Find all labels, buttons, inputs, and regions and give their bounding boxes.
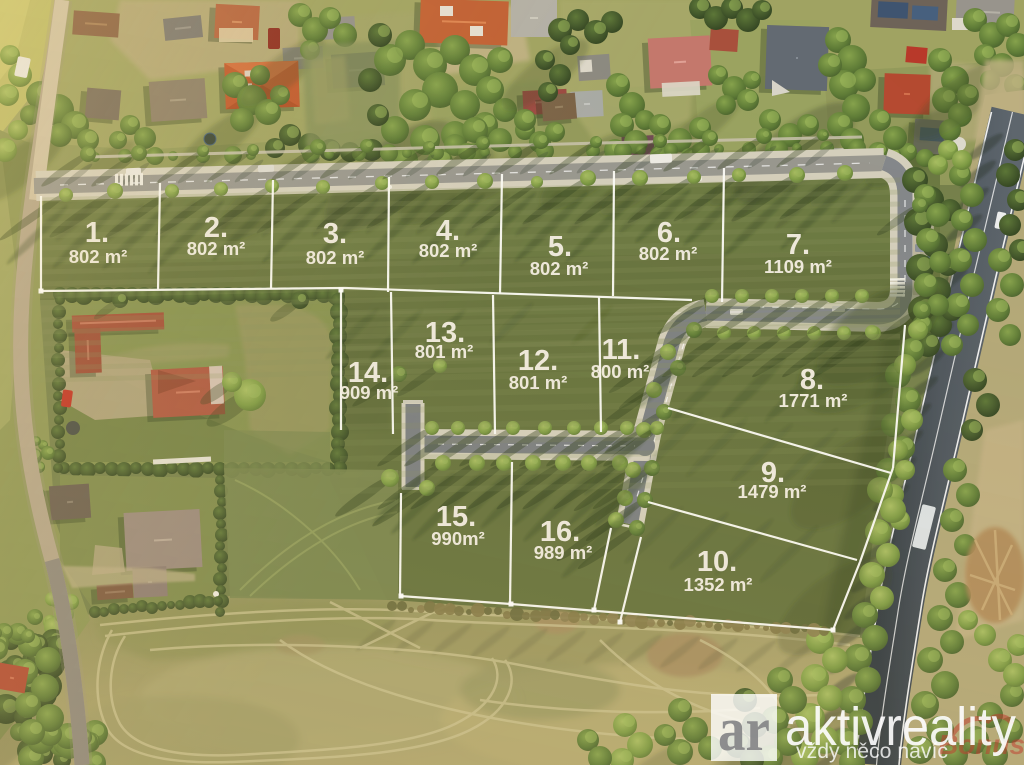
svg-text:vždy něco navíc: vždy něco navíc [796, 740, 948, 763]
svg-text:ar: ar [718, 696, 770, 764]
